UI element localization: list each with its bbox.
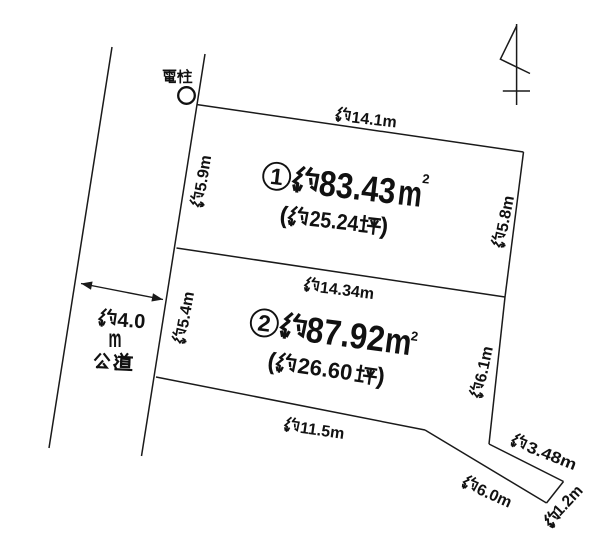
svg-text:m: m xyxy=(109,325,122,353)
svg-text:m: m xyxy=(396,171,425,214)
